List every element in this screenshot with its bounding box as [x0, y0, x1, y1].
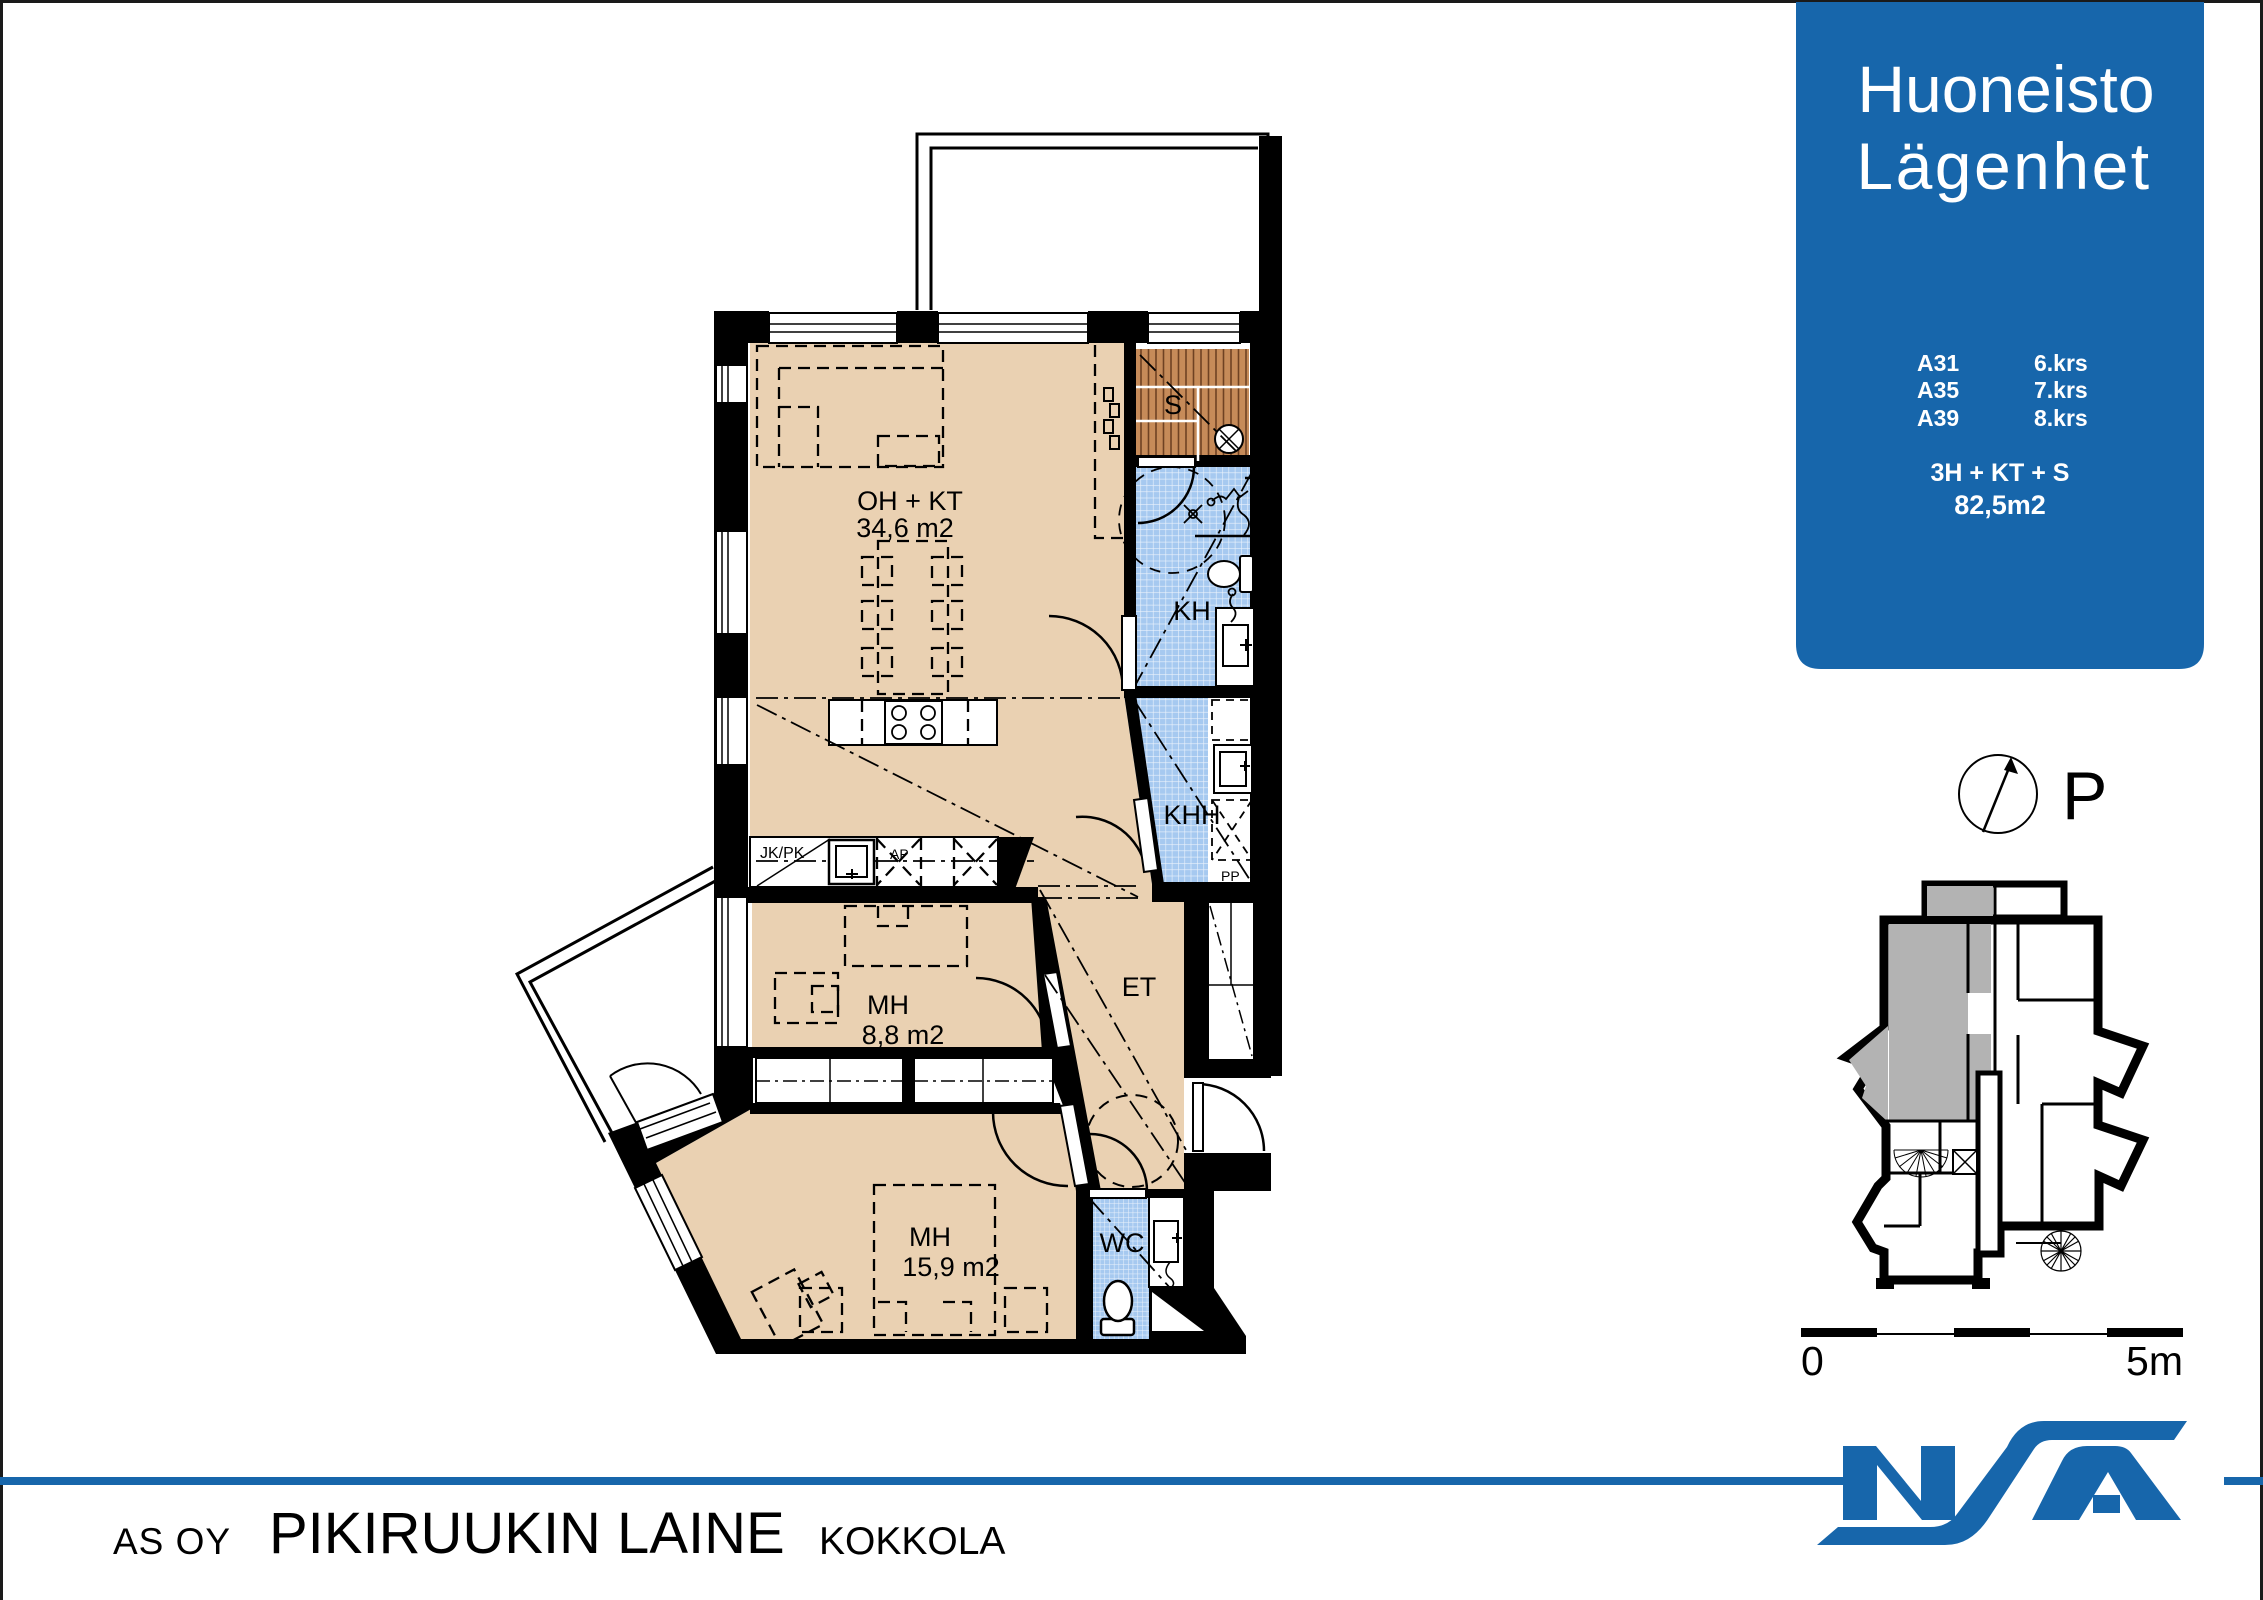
svg-text:MH: MH — [909, 1222, 951, 1252]
svg-text:A31: A31 — [1917, 350, 1959, 376]
svg-text:15,9 m2: 15,9 m2 — [902, 1252, 1000, 1282]
svg-text:JK/PK: JK/PK — [760, 845, 805, 862]
svg-text:A39: A39 — [1917, 405, 1959, 431]
svg-text:PP: PP — [1221, 868, 1240, 884]
svg-text:82,5m2: 82,5m2 — [1954, 490, 2046, 520]
svg-text:0: 0 — [1801, 1338, 1824, 1384]
svg-text:3H + KT + S: 3H + KT + S — [1931, 459, 2070, 487]
svg-text:A35: A35 — [1917, 377, 1959, 403]
svg-text:AS OY: AS OY — [113, 1521, 231, 1562]
svg-text:KOKKOLA: KOKKOLA — [819, 1520, 1005, 1563]
svg-text:8.krs: 8.krs — [2034, 405, 2088, 431]
svg-text:KH: KH — [1173, 596, 1211, 626]
svg-text:ET: ET — [1122, 972, 1157, 1002]
svg-text:PIKIRUUKIN LAINE: PIKIRUUKIN LAINE — [269, 1501, 785, 1566]
svg-text:AP: AP — [890, 846, 909, 862]
svg-text:Lägenhet: Lägenhet — [1856, 129, 2151, 203]
svg-text:KHH: KHH — [1163, 800, 1220, 830]
svg-text:7.krs: 7.krs — [2034, 377, 2088, 403]
svg-text:P: P — [2062, 758, 2107, 834]
svg-text:6.krs: 6.krs — [2034, 350, 2088, 376]
svg-text:34,6 m2: 34,6 m2 — [856, 513, 954, 543]
svg-text:MH: MH — [867, 990, 909, 1020]
svg-text:Huoneisto: Huoneisto — [1857, 52, 2154, 126]
svg-text:WC: WC — [1100, 1228, 1145, 1258]
svg-text:OH + KT: OH + KT — [857, 486, 963, 516]
svg-text:8,8 m2: 8,8 m2 — [862, 1020, 945, 1050]
svg-text:5m: 5m — [2126, 1338, 2183, 1384]
svg-text:S: S — [1164, 390, 1182, 420]
